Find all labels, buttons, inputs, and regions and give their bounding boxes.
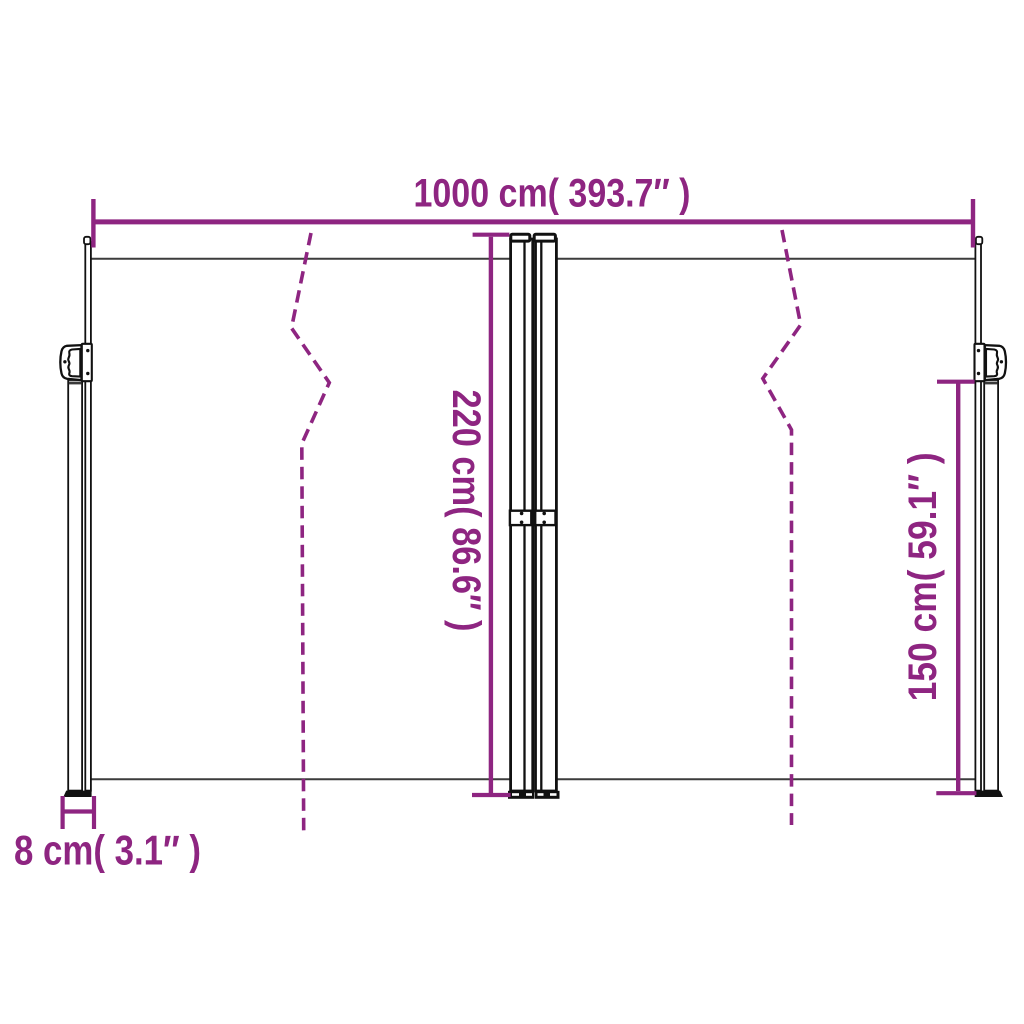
svg-text:1000 cm( 393.7″ ): 1000 cm( 393.7″ ): [414, 172, 691, 216]
svg-text:8 cm( 3.1″ ): 8 cm( 3.1″ ): [14, 827, 201, 874]
svg-text:150 cm( 59.1″ ): 150 cm( 59.1″ ): [901, 452, 945, 701]
svg-text:220 cm( 86.6″ ): 220 cm( 86.6″ ): [444, 390, 488, 632]
